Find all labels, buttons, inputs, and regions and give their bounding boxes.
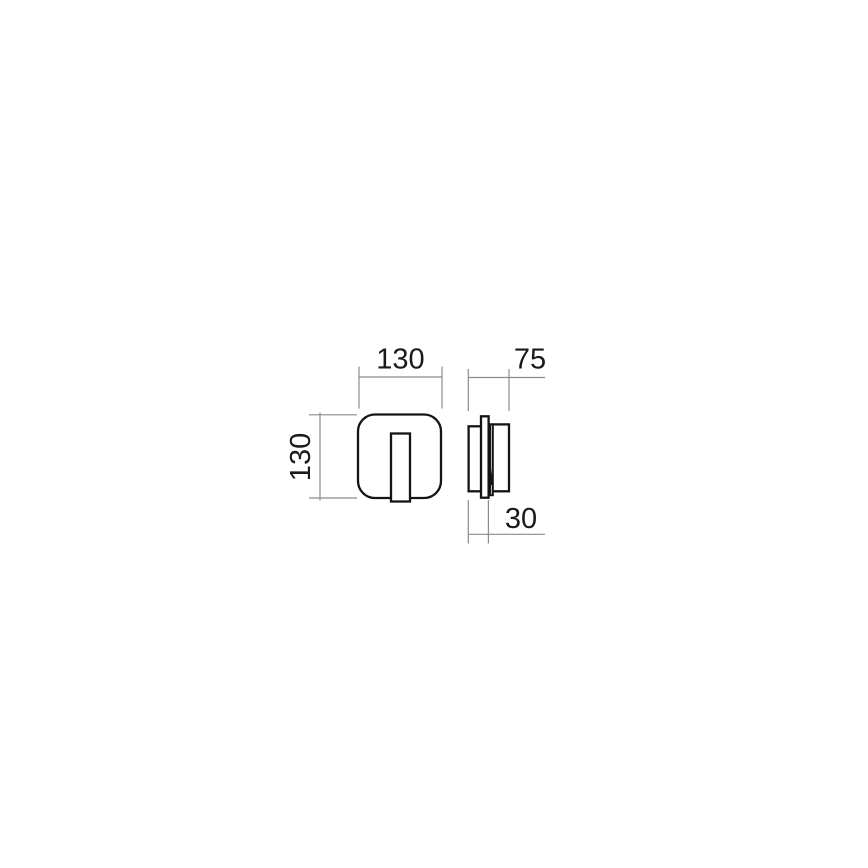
dim-front-height: 130 xyxy=(285,413,357,501)
front-view xyxy=(358,415,441,502)
dimension-drawing: 130 130 75 30 xyxy=(0,0,868,868)
dim-side-depth-label: 75 xyxy=(514,344,546,376)
dim-front-width: 130 xyxy=(359,344,442,409)
dim-mount-depth: 30 xyxy=(468,500,545,544)
drawing-canvas: 130 130 75 30 xyxy=(0,0,868,868)
dim-mount-depth-label: 30 xyxy=(505,503,537,535)
dim-front-height-label: 130 xyxy=(285,433,317,481)
dim-side-depth: 75 xyxy=(468,344,546,412)
dim-front-width-label: 130 xyxy=(376,344,424,376)
side-view xyxy=(469,416,509,497)
side-view-mount-plate xyxy=(481,416,489,497)
front-view-slot xyxy=(391,434,410,502)
